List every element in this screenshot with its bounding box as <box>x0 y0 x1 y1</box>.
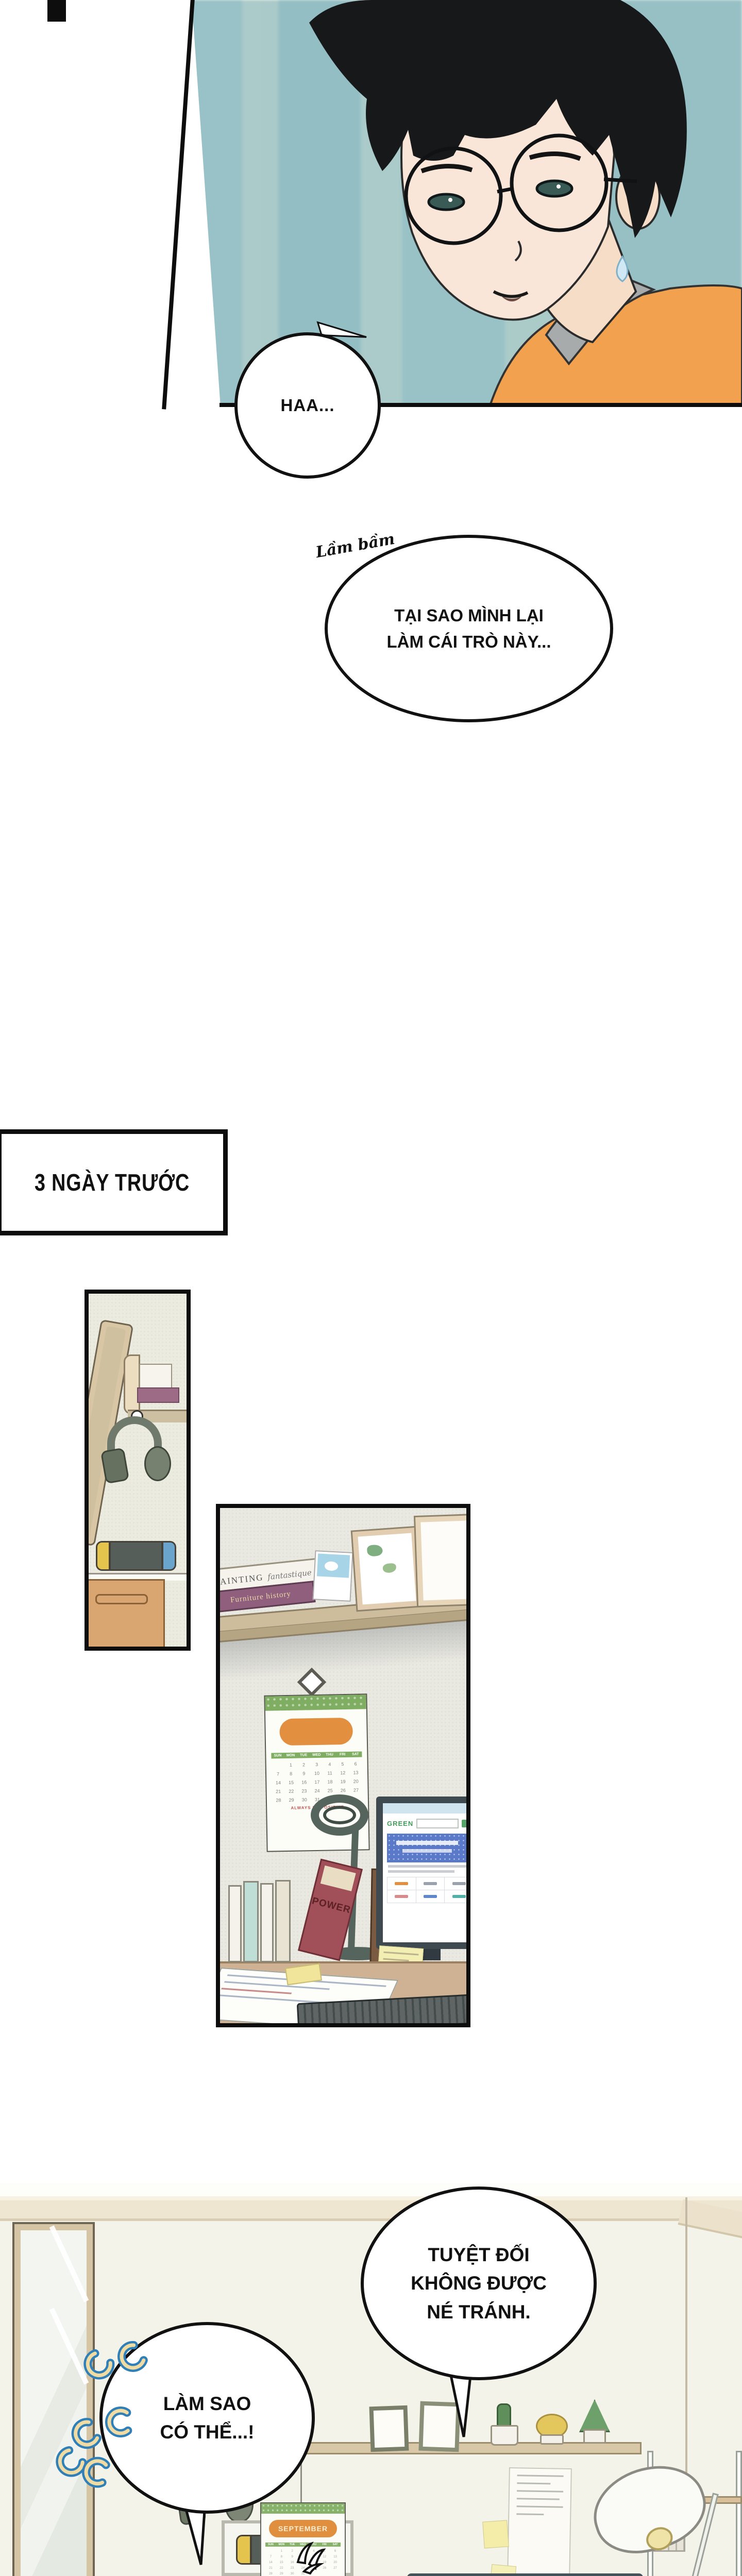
drawer-handle <box>95 1594 148 1604</box>
link-cell <box>445 1890 470 1903</box>
grid-cell: 14 <box>272 1780 284 1785</box>
eye-highlight <box>556 184 561 189</box>
speech-text: TẠI SAO MÌNH LẠI LÀM CÁI TRÒ NÀY... <box>387 602 551 655</box>
book-spine <box>228 1885 242 1962</box>
calendar-weekday-row: SUNMONTUEWEDTHUFRISAT <box>271 1751 362 1758</box>
grid-cell: 26 <box>336 1788 349 1793</box>
ear-cup <box>144 1446 171 1481</box>
glasses-temple <box>604 179 637 181</box>
link-cell <box>445 1877 470 1890</box>
search-box <box>416 1819 459 1828</box>
plant-sketch <box>382 1563 396 1573</box>
annoyance-mark <box>56 2447 85 2477</box>
picture-frame-blank <box>415 1515 470 1606</box>
panel-shelf-detail <box>85 1290 191 1651</box>
mirror-streak <box>49 2225 89 2302</box>
grid-cell: 10 <box>310 1771 323 1776</box>
link-table <box>387 1877 470 1903</box>
paper-line-red <box>221 1988 292 1994</box>
eye-highlight <box>448 198 452 202</box>
link-cell <box>387 1890 416 1903</box>
grid-cell: 17 <box>311 1780 324 1785</box>
grid-cell: 20 <box>349 1778 362 1784</box>
link-bar <box>395 1895 408 1898</box>
grid-cell: 24 <box>311 1788 324 1793</box>
link-bar <box>424 1895 437 1898</box>
annoyance-marks <box>41 2334 175 2540</box>
desk-monitor: GREEN <box>376 1797 470 1949</box>
note-line <box>383 1952 418 1956</box>
rack-pole <box>736 2451 742 2576</box>
grid-cell <box>272 1762 284 1768</box>
grid-cell: 4 <box>323 1761 336 1767</box>
ad-banner <box>387 1834 470 1862</box>
banner-text-bar <box>402 1849 452 1853</box>
book-label-band <box>321 1866 356 1891</box>
grid-cell: 16 <box>298 1780 311 1785</box>
grid-cell: 12 <box>336 1770 349 1775</box>
grid-cell: 5 <box>336 1761 349 1767</box>
wall-corner-line <box>685 2197 687 2486</box>
annoyance-mark <box>119 2343 145 2371</box>
grid-cell: 22 <box>285 1789 298 1794</box>
grid-cell: 6 <box>349 1761 362 1766</box>
link-cell <box>416 1890 445 1903</box>
grid-cell: 18 <box>324 1779 336 1784</box>
calendar-header-band <box>265 1694 366 1710</box>
text-line <box>388 1870 454 1873</box>
grid-cell: 1 <box>284 1762 297 1768</box>
console-screen <box>109 1541 163 1571</box>
list-line <box>517 2475 564 2477</box>
list-line <box>517 2505 563 2508</box>
grid-cell: 25 <box>324 1788 336 1793</box>
webtoon-page: HAA... TẠI SAO MÌNH LẠI LÀM CÁI TRÒ NÀY.… <box>0 0 742 2576</box>
grid-cell: 9 <box>297 1771 310 1776</box>
plant-sketch <box>367 1545 383 1557</box>
grid-cell: 8 <box>284 1771 297 1776</box>
game-console <box>96 1541 176 1571</box>
annoyance-mark <box>107 2409 131 2435</box>
lamp-ring <box>323 1806 356 1824</box>
headphones-icon <box>107 1416 165 1468</box>
link-bar <box>452 1882 466 1885</box>
book-spine <box>260 1883 274 1962</box>
sky <box>317 1553 350 1578</box>
speech-bubble-haa: HAA... <box>234 332 381 479</box>
desk-lamp-head <box>311 1794 368 1836</box>
time-caption-box: 3 NGÀY TRƯỚC <box>0 1129 228 1235</box>
grid-cell: SAT <box>349 1752 362 1756</box>
annoyance-mark <box>73 2420 98 2448</box>
link-cell <box>387 1877 416 1890</box>
grid-cell: 21 <box>272 1789 285 1794</box>
browser-top-bar <box>383 1803 470 1814</box>
link-bar <box>424 1882 437 1885</box>
grid-cell: 19 <box>336 1779 349 1784</box>
annoyance-mark <box>83 2350 113 2380</box>
power-book-title: POWER <box>310 1895 352 1916</box>
grid-cell: THU <box>323 1753 336 1756</box>
panel-desk-detail: PAINTING fantastique Furniture history S… <box>216 1504 470 2027</box>
grid-cell: FRI <box>336 1753 349 1756</box>
table-row <box>387 1877 471 1890</box>
table-row <box>387 1890 471 1903</box>
grid-cell: SUN <box>271 1754 284 1757</box>
shelf-lip <box>124 1354 140 1414</box>
sky-postcard <box>313 1550 353 1602</box>
grid-cell: 27 <box>349 1787 362 1792</box>
cloud <box>325 1561 339 1571</box>
list-line <box>517 2482 550 2484</box>
grid-cell: 23 <box>298 1788 311 1793</box>
speech-text: TUYỆT ĐỐI KHÔNG ĐƯỢC NÉ TRÁNH. <box>411 2241 547 2327</box>
joycon-right <box>162 1541 176 1571</box>
furniture-book-title: Furniture history <box>230 1589 291 1604</box>
search-portal-row: GREEN <box>383 1814 470 1832</box>
annoyance-mark <box>82 2457 110 2486</box>
search-button <box>462 1820 469 1827</box>
grid-cell: 13 <box>349 1770 362 1775</box>
corner-notch <box>47 0 66 22</box>
grid-cell: 28 <box>272 1798 285 1803</box>
grid-cell: 7 <box>272 1771 284 1776</box>
grid-cell: 2 <box>297 1762 310 1767</box>
calendar-photo-blob <box>279 1718 353 1745</box>
time-caption: 3 NGÀY TRƯỚC <box>35 1168 190 1196</box>
wooden-cabinet <box>85 1579 165 1651</box>
grid-cell: 30 <box>298 1797 311 1802</box>
grid-cell: 3 <box>310 1762 323 1767</box>
grid-cell: WED <box>310 1753 323 1757</box>
book-spine <box>243 1881 259 1962</box>
text-line <box>388 1865 470 1868</box>
grid-cell: 11 <box>323 1770 336 1775</box>
picture-frame-plants <box>352 1528 421 1610</box>
link-bar <box>395 1882 408 1885</box>
portal-logo-text: GREEN <box>387 1820 413 1827</box>
painting-book-subtitle: fantastique <box>267 1568 312 1582</box>
list-line <box>516 2513 544 2515</box>
grid-cell: TUE <box>297 1753 310 1757</box>
white-book <box>139 1364 172 1388</box>
grid-cell: MON <box>284 1754 297 1757</box>
eye-right <box>537 181 572 196</box>
book-spine <box>275 1880 291 1962</box>
link-bar <box>452 1895 466 1898</box>
plant <box>579 2399 610 2432</box>
banner-text-bar <box>396 1841 458 1845</box>
grid-cell: 15 <box>284 1780 297 1785</box>
speech-text: HAA... <box>281 396 335 415</box>
round-yellow-pot <box>536 2411 566 2443</box>
pot <box>583 2429 606 2444</box>
joycon-left <box>96 1541 110 1571</box>
saucer <box>540 2434 564 2445</box>
grid-cell: 29 <box>285 1798 298 1803</box>
purple-book <box>137 1387 179 1403</box>
ceiling-molding <box>0 2196 742 2221</box>
cone-plant <box>579 2399 608 2443</box>
speech-bubble-why: TẠI SAO MÌNH LẠI LÀM CÁI TRÒ NÀY... <box>325 535 613 722</box>
painting-book-title: PAINTING <box>216 1572 264 1588</box>
link-cell <box>416 1877 445 1890</box>
list-line <box>517 2490 563 2493</box>
speech-bubble-absolutely: TUYỆT ĐỐI KHÔNG ĐƯỢC NÉ TRÁNH. <box>361 2187 597 2380</box>
list-line <box>517 2498 560 2500</box>
eye-left <box>429 194 464 210</box>
